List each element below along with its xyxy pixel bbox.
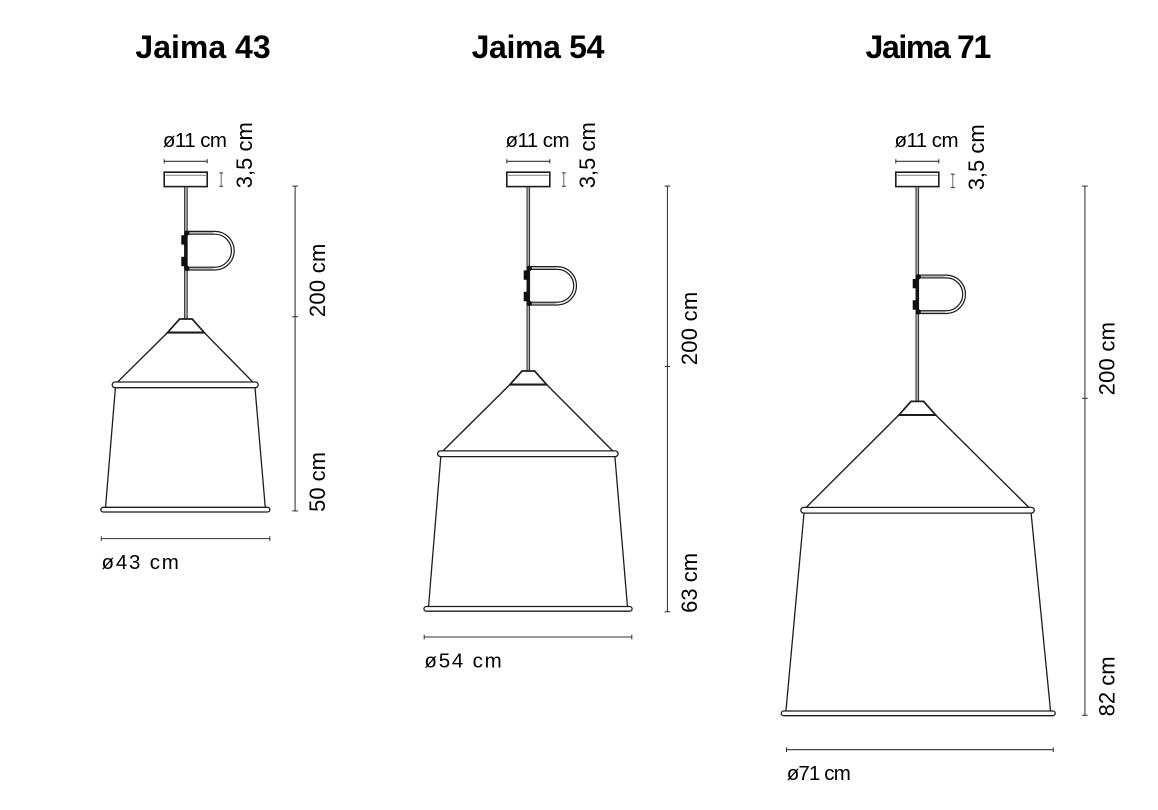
svg-text:200 cm: 200 cm — [677, 292, 702, 366]
svg-text:3,5 cm: 3,5 cm — [232, 122, 257, 188]
svg-text:Jaima 43: Jaima 43 — [135, 29, 270, 65]
svg-text:3,5 cm: 3,5 cm — [575, 122, 600, 188]
svg-text:200 cm: 200 cm — [305, 243, 330, 317]
svg-text:ø11 cm: ø11 cm — [506, 129, 570, 152]
svg-text:ø54 cm: ø54 cm — [424, 649, 503, 672]
svg-text:3,5 cm: 3,5 cm — [964, 124, 989, 190]
svg-text:50 cm: 50 cm — [305, 452, 330, 512]
svg-text:82 cm: 82 cm — [1095, 656, 1120, 716]
svg-text:200 cm: 200 cm — [1095, 322, 1120, 396]
svg-text:ø71 cm: ø71 cm — [787, 762, 850, 785]
svg-text:ø11 cm: ø11 cm — [895, 129, 959, 152]
svg-text:ø11 cm: ø11 cm — [163, 129, 227, 152]
svg-text:63 cm: 63 cm — [677, 553, 702, 613]
svg-text:ø43 cm: ø43 cm — [102, 551, 181, 574]
svg-text:Jaima 71: Jaima 71 — [866, 29, 991, 65]
svg-text:Jaima 54: Jaima 54 — [472, 29, 605, 65]
